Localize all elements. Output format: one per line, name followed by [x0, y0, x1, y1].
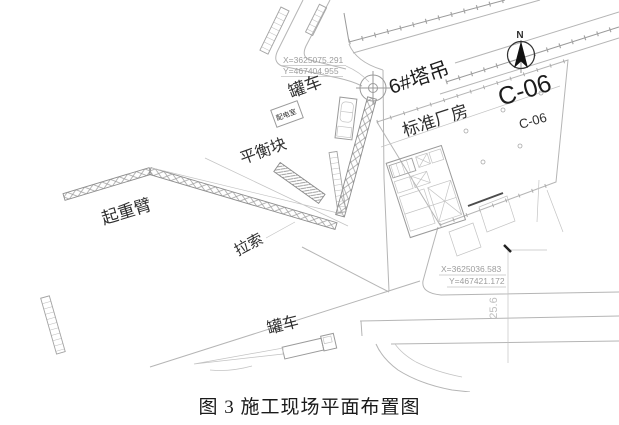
survey-x-value: X=3625036.583	[441, 264, 502, 274]
tank-truck-bottom	[194, 333, 337, 370]
label-factory-building: 标准厂房	[400, 101, 471, 140]
label-power-room: 配电室	[275, 107, 298, 123]
survey-x-value: X=3625075.291	[283, 55, 344, 65]
label-block-code-small: C-06	[517, 110, 548, 132]
label-tank-truck-bottom: 罐车	[265, 313, 300, 338]
figure-caption: 图 3 施工现场平面布置图	[0, 392, 619, 419]
site-plan-figure: N X=3625075.291 Y=467404.955 X=3625036.5…	[0, 0, 619, 425]
north-arrow: N	[508, 30, 535, 73]
label-dimension: 25.6	[488, 297, 500, 318]
label-crane-jib: 起重臂	[99, 195, 153, 228]
survey-point-callout-top: X=3625075.291 Y=467404.955	[281, 55, 369, 82]
leader-arrow	[504, 245, 511, 252]
building-interior-core	[386, 145, 465, 237]
label-guy-cable: 拉索	[232, 230, 266, 259]
tank-truck-top	[335, 97, 357, 140]
label-tower-crane: 6#塔吊	[386, 57, 452, 99]
plan-labels: 罐车 6#塔吊 标准厂房 C-06 C-06 配电室 平衡块 起重臂 拉索 罐车…	[99, 57, 554, 338]
label-block-code-large: C-06	[495, 69, 555, 112]
site-plan-drawing: N X=3625075.291 Y=467404.955 X=3625036.5…	[0, 0, 619, 392]
north-label: N	[516, 30, 523, 41]
counterweight-block	[274, 163, 325, 204]
survey-y-value: Y=467421.172	[449, 276, 505, 286]
slewing-ring	[356, 71, 390, 105]
